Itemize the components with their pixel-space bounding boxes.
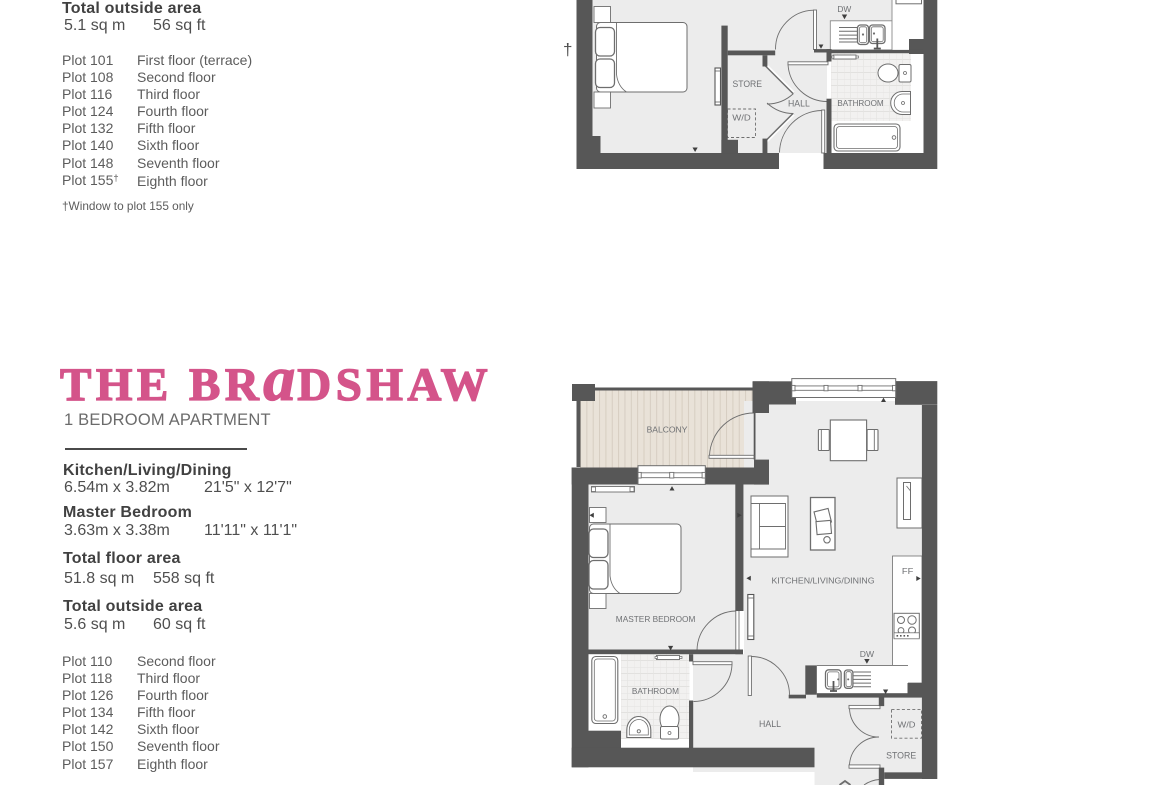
svg-text:DW: DW — [837, 4, 851, 14]
svg-text:STORE: STORE — [733, 79, 763, 89]
svg-text:HALL: HALL — [759, 719, 781, 729]
svg-text:DW: DW — [860, 649, 874, 659]
svg-text:FF: FF — [902, 566, 913, 576]
svg-text:BATHROOM: BATHROOM — [837, 98, 883, 108]
svg-text:W/D: W/D — [898, 720, 916, 730]
svg-text:MASTER BEDROOM: MASTER BEDROOM — [616, 614, 696, 624]
svg-text:W/D: W/D — [732, 112, 751, 122]
svg-text:STORE: STORE — [886, 751, 916, 761]
svg-text:BATHROOM: BATHROOM — [632, 686, 679, 696]
svg-text:KITCHEN/LIVING/DINING: KITCHEN/LIVING/DINING — [772, 575, 875, 585]
svg-text:HALL: HALL — [788, 98, 810, 108]
svg-text:BALCONY: BALCONY — [647, 425, 688, 435]
